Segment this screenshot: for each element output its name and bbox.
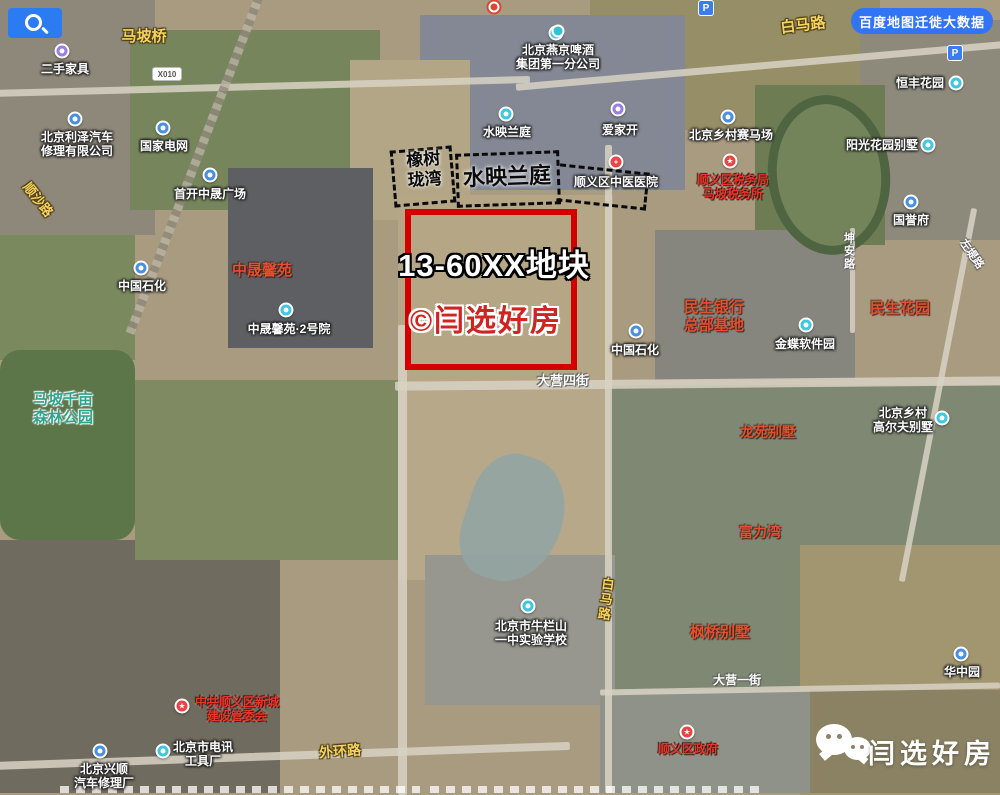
- yanjing-beer-text: 北京燕京啤酒: [516, 43, 600, 57]
- kingdee-software-park-label[interactable]: 金蝶软件园: [775, 337, 835, 351]
- shunyi-district-gov-text: 顺义区政府: [658, 742, 718, 756]
- zhongsheng-no2-yard-label[interactable]: 中晟馨苑·2号院: [248, 322, 331, 336]
- xingshun-auto-repair-label[interactable]: 北京兴顺汽车修理厂: [74, 762, 134, 790]
- mapo-forest-park-text: 马坡千亩: [33, 391, 93, 409]
- parking-icon[interactable]: P: [947, 45, 963, 61]
- waihuan-road-text: 外环路: [318, 742, 361, 761]
- fuliwan-label[interactable]: 富力湾: [739, 524, 781, 541]
- cutoff-label-fragments: [430, 786, 760, 793]
- countryside-golf-villa-icon[interactable]: [935, 411, 950, 426]
- terrain-patch: [0, 235, 135, 360]
- hengfeng-garden-label[interactable]: 恒丰花园: [896, 76, 944, 90]
- kingdee-software-park-text: 金蝶软件园: [775, 337, 835, 351]
- daying-4th-street-label: 大营四街: [537, 373, 589, 388]
- shuiying-lanting-area-label: 水映兰庭: [463, 162, 552, 191]
- mapo-tax-office-label[interactable]: 顺义区税务局马坡税务所: [697, 173, 769, 201]
- zhongsheng-xinyuan-label[interactable]: 中晟馨苑: [232, 262, 292, 280]
- shunyi-district-gov-label[interactable]: 顺义区政府: [658, 742, 718, 756]
- ershou-furniture-label[interactable]: 二手家具: [41, 62, 89, 76]
- countryside-racecourse-label[interactable]: 北京乡村赛马场: [689, 128, 773, 142]
- niulanshan-school-text: 一中实验学校: [495, 633, 567, 647]
- tcm-hospital-icon[interactable]: +: [609, 155, 624, 170]
- road: [398, 325, 407, 795]
- migration-data-button[interactable]: 百度地图迁徙大数据: [851, 8, 993, 34]
- panorama-target-icon: [487, 0, 502, 15]
- daying-4th-street-text: 大营四街: [537, 373, 589, 388]
- xiangshu-longwan-area-text: 珑湾: [407, 169, 442, 191]
- xincheng-committee-icon[interactable]: ★: [175, 699, 190, 714]
- hengfeng-garden-icon[interactable]: [949, 76, 964, 91]
- mapo-forest-park-text: 森林公园: [33, 409, 93, 427]
- poi-dot-icon: [552, 25, 565, 38]
- sinopec-mid-text: 中国石化: [611, 343, 659, 357]
- plot-watermark-label: ©闫选好房: [410, 304, 562, 339]
- sunshine-garden-villa-icon[interactable]: [921, 138, 936, 153]
- xincheng-committee-text: 建设管委会: [195, 709, 279, 723]
- mapo-tax-office-icon[interactable]: ★: [723, 154, 738, 169]
- search-icon: [25, 14, 42, 31]
- huazhong-garden-text: 华中园: [944, 665, 980, 679]
- minsheng-garden-text: 民生花园: [870, 300, 930, 318]
- niulanshan-school-text: 北京市牛栏山: [495, 619, 567, 633]
- xiangshu-longwan-area-label: 橡树珑湾: [406, 149, 443, 191]
- minsheng-bank-hq-text: 总部基地: [684, 317, 744, 335]
- sinopec-mid-icon[interactable]: [629, 324, 644, 339]
- guoyufu-label[interactable]: 国誉府: [893, 213, 929, 227]
- fengqiao-villa-label[interactable]: 枫桥别墅: [690, 624, 750, 642]
- plot-id-text: 13-60XX地块: [398, 248, 590, 285]
- terrain-patch: [228, 168, 373, 348]
- lize-auto-repair-text: 修理有限公司: [41, 144, 113, 158]
- niulanshan-school-label[interactable]: 北京市牛栏山一中实验学校: [495, 619, 567, 647]
- sinopec-mid-label[interactable]: 中国石化: [611, 343, 659, 357]
- tcm-hospital-text: 顺义区中医医院: [574, 175, 658, 189]
- zhongsheng-no2-yard-text: 中晟馨苑·2号院: [248, 322, 331, 336]
- countryside-racecourse-text: 北京乡村赛马场: [689, 128, 773, 142]
- wechat-icon-small-bubble: [844, 737, 871, 760]
- sinopec-west-icon[interactable]: [134, 261, 149, 276]
- zhongsheng-xinyuan-text: 中晟馨苑: [232, 262, 292, 280]
- brand-watermark: 闫选好房: [868, 732, 996, 771]
- countryside-racecourse-icon[interactable]: [721, 110, 736, 125]
- satellite-map[interactable]: 马坡桥白马路顺沙路二手家具北京利泽汽车修理有限公司国家电网首开中晟广场北京燕京啤…: [0, 0, 1000, 793]
- shuiying-lanting-area-text: 水映兰庭: [463, 162, 552, 191]
- xincheng-committee-label[interactable]: 中共顺义区新城建设管委会: [195, 695, 279, 723]
- guoyufu-text: 国誉府: [893, 213, 929, 227]
- kunan-road-label: 坤安路: [842, 232, 855, 271]
- waihuan-road-label: 外环路: [318, 742, 361, 761]
- terrain-patch: [135, 380, 400, 560]
- zhongsheng-no2-yard-icon[interactable]: [279, 303, 294, 318]
- xincheng-committee-text: 中共顺义区新城: [195, 695, 279, 709]
- mapo-forest-park-label[interactable]: 马坡千亩森林公园: [33, 391, 93, 426]
- lize-auto-repair-label[interactable]: 北京利泽汽车修理有限公司: [41, 130, 113, 158]
- wechat-watermark: 闫选好房: [816, 724, 996, 772]
- xingshun-auto-repair-icon[interactable]: [93, 744, 108, 759]
- minsheng-bank-hq-label[interactable]: 民生银行总部基地: [684, 299, 744, 334]
- plot-id-label: 13-60XX地块: [398, 248, 590, 285]
- hengfeng-garden-text: 恒丰花园: [896, 76, 944, 90]
- road-shield-x010: X010: [152, 67, 182, 81]
- tcm-hospital-label[interactable]: 顺义区中医医院: [574, 175, 658, 189]
- state-grid-text: 国家电网: [140, 139, 188, 153]
- yanjing-beer-label[interactable]: 北京燕京啤酒集团第一分公司: [516, 43, 600, 71]
- search-icon-handle: [41, 27, 49, 35]
- huazhong-garden-label[interactable]: 华中园: [944, 665, 980, 679]
- lize-auto-repair-icon[interactable]: [68, 112, 83, 127]
- fuliwan-text: 富力湾: [739, 524, 781, 541]
- daying-1st-street-label: 大营一街: [713, 673, 761, 687]
- telecom-tool-factory-icon[interactable]: [156, 744, 171, 759]
- ershou-furniture-text: 二手家具: [41, 62, 89, 76]
- aijiakai-label[interactable]: 爱家开: [602, 123, 638, 137]
- aijiakai-text: 爱家开: [602, 123, 638, 137]
- terrain-patch: [0, 350, 135, 540]
- mapo-bridge-text: 马坡桥: [121, 28, 166, 46]
- shuiying-lanting-poi-text: 水映兰庭: [483, 125, 531, 139]
- minsheng-bank-hq-text: 民生银行: [684, 299, 744, 317]
- sunshine-garden-villa-label[interactable]: 阳光花园别墅: [846, 138, 918, 152]
- plot-highlight-frame: [405, 209, 577, 370]
- countryside-golf-villa-label[interactable]: 北京乡村高尔夫别墅: [873, 406, 933, 434]
- shuiying-lanting-poi-label[interactable]: 水映兰庭: [483, 125, 531, 139]
- countryside-golf-villa-text: 北京乡村: [873, 406, 933, 420]
- parking-icon[interactable]: P: [698, 0, 714, 16]
- guoyufu-icon[interactable]: [904, 195, 919, 210]
- aijiakai-icon[interactable]: [611, 102, 626, 117]
- shoukai-plaza-text: 首开中晟广场: [174, 187, 246, 201]
- mapo-bridge-label: 马坡桥: [121, 28, 166, 46]
- kingdee-software-park-icon[interactable]: [799, 318, 814, 333]
- longyuan-villa-label[interactable]: 龙苑别墅: [740, 424, 796, 441]
- ershou-furniture-icon[interactable]: [55, 44, 70, 59]
- shunyi-district-gov-icon[interactable]: ★: [680, 725, 695, 740]
- niulanshan-school-icon[interactable]: [521, 599, 536, 614]
- xingshun-auto-repair-text: 北京兴顺: [74, 762, 134, 776]
- road-baima: [605, 145, 612, 793]
- plot-watermark-text: ©闫选好房: [410, 304, 562, 339]
- mapo-tax-office-text: 顺义区税务局: [697, 173, 769, 187]
- state-grid-icon[interactable]: [156, 121, 171, 136]
- yanjing-beer-text: 集团第一分公司: [516, 57, 600, 71]
- kunan-road-text: 坤安路: [842, 232, 855, 271]
- huazhong-garden-icon[interactable]: [954, 647, 969, 662]
- daying-1st-street-text: 大营一街: [713, 673, 761, 687]
- shuiying-lanting-poi-icon[interactable]: [499, 107, 514, 122]
- telecom-tool-factory-text: 工具厂: [173, 754, 233, 768]
- lize-auto-repair-text: 北京利泽汽车: [41, 130, 113, 144]
- search-button[interactable]: [8, 8, 62, 38]
- countryside-golf-villa-text: 高尔夫别墅: [873, 420, 933, 434]
- sinopec-west-text: 中国石化: [118, 279, 166, 293]
- sinopec-west-label[interactable]: 中国石化: [118, 279, 166, 293]
- mapo-tax-office-text: 马坡税务所: [697, 187, 769, 201]
- telecom-tool-factory-label[interactable]: 北京市电讯工具厂: [173, 740, 233, 768]
- sunshine-garden-villa-text: 阳光花园别墅: [846, 138, 918, 152]
- shoukai-plaza-icon[interactable]: [203, 168, 218, 183]
- xiangshu-longwan-area-text: 橡树: [406, 149, 441, 171]
- telecom-tool-factory-text: 北京市电讯: [173, 740, 233, 754]
- state-grid-label[interactable]: 国家电网: [140, 139, 188, 153]
- fengqiao-villa-text: 枫桥别墅: [690, 624, 750, 642]
- minsheng-garden-label[interactable]: 民生花园: [870, 300, 930, 318]
- longyuan-villa-text: 龙苑别墅: [740, 424, 796, 441]
- xingshun-auto-repair-text: 汽车修理厂: [74, 776, 134, 790]
- shoukai-plaza-label[interactable]: 首开中晟广场: [174, 187, 246, 201]
